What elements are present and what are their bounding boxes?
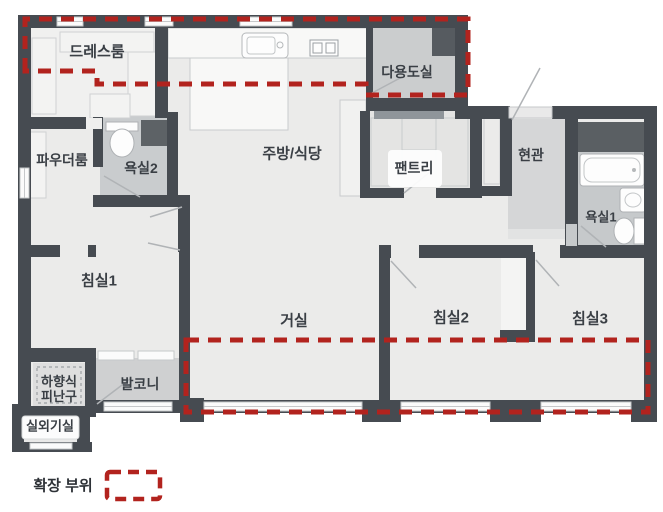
room-label-pantry: 팬트리 bbox=[395, 160, 434, 176]
sink-icon bbox=[242, 33, 288, 58]
stove-icon bbox=[310, 40, 338, 56]
floorplan-canvas: 드레스룸 파우더룸 욕실2 주방/식당 다용도실 팬트리 현관 욕실1 침실1 … bbox=[0, 0, 663, 512]
bathtub-icon bbox=[580, 154, 644, 186]
room-label-kitchen-dining: 주방/식당 bbox=[262, 145, 321, 162]
room-label-bedroom2: 침실2 bbox=[433, 309, 469, 326]
room-label-bathroom2: 욕실2 bbox=[124, 160, 158, 176]
room-label-living-room: 거실 bbox=[280, 312, 308, 329]
legend-dashed-box bbox=[107, 472, 160, 499]
room-label-entrance: 현관 bbox=[518, 147, 544, 163]
entrance-closet bbox=[578, 122, 645, 152]
room-label-dressroom: 드레스룸 bbox=[69, 43, 124, 60]
room-label-bathroom1: 욕실1 bbox=[585, 211, 616, 226]
toilet-icon-bath1 bbox=[614, 218, 645, 244]
escape-hatch-line2: 피난구 bbox=[41, 390, 77, 405]
room-label-escape-hatch: 하향식 피난구 bbox=[41, 375, 77, 405]
washbasin-icon bbox=[620, 188, 646, 212]
escape-hatch-line1: 하향식 bbox=[41, 375, 77, 390]
room-label-utility-room: 다용도실 bbox=[381, 64, 433, 80]
legend-label: 확장 부위 bbox=[33, 477, 92, 494]
room-label-balcony: 발코니 bbox=[121, 376, 160, 392]
room-label-bedroom3: 침실3 bbox=[572, 310, 608, 327]
room-label-outdoor-unit-room: 실외기실 bbox=[26, 420, 74, 435]
room-label-powder-room: 파우더룸 bbox=[36, 152, 88, 168]
room-label-bedroom1: 침실1 bbox=[81, 272, 117, 289]
floorplan-drawing bbox=[0, 0, 663, 512]
